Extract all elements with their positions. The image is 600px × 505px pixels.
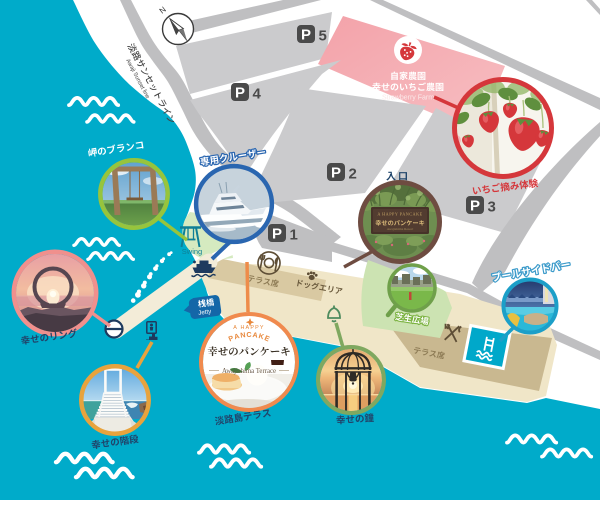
svg-text:P: P (301, 27, 311, 44)
svg-text:3: 3 (488, 199, 496, 216)
svg-text:A HAPPY PANCAKE: A HAPPY PANCAKE (377, 212, 422, 217)
svg-text:P: P (235, 85, 245, 102)
svg-text:P: P (331, 165, 341, 182)
svg-text:Awajishima Resort: Awajishima Resort (387, 227, 414, 231)
svg-text:Swing: Swing (182, 247, 202, 256)
svg-text:P: P (272, 226, 282, 243)
svg-text:5: 5 (319, 28, 327, 45)
svg-text:Awajishima Terrace: Awajishima Terrace (222, 368, 276, 375)
svg-text:4: 4 (253, 86, 262, 103)
svg-text:1: 1 (290, 227, 298, 244)
svg-text:C: C (246, 330, 251, 339)
svg-text:Strawberry Farm: Strawberry Farm (382, 95, 434, 102)
svg-text:2: 2 (349, 166, 357, 183)
svg-text:P: P (470, 198, 480, 215)
